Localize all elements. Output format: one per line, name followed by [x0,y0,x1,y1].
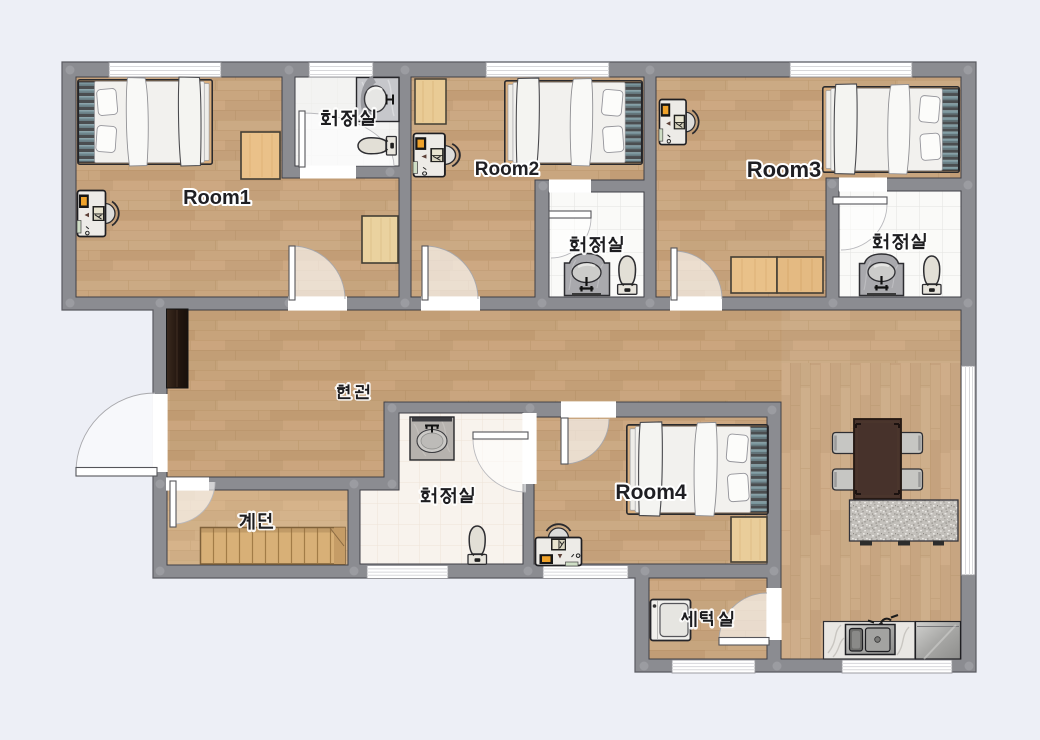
svg-text:Room4: Room4 [615,481,686,504]
svg-text:Room2: Room2 [475,159,539,180]
svg-text:Room3: Room3 [747,157,822,182]
svg-text:Room1: Room1 [183,187,251,209]
